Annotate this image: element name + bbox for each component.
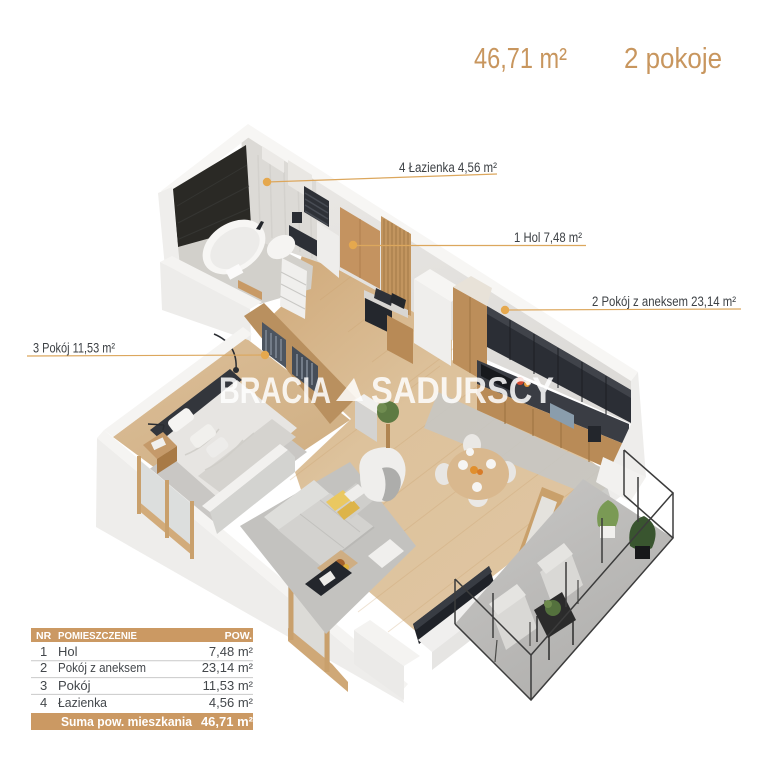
svg-text:2: 2 — [40, 660, 47, 675]
svg-text:2 Pokój z aneksem 23,14 m²: 2 Pokój z aneksem 23,14 m² — [592, 294, 736, 309]
svg-text:11,53 m²: 11,53 m² — [203, 678, 254, 693]
svg-text:2 pokoje: 2 pokoje — [624, 43, 722, 75]
svg-text:46,71 m²: 46,71 m² — [201, 714, 254, 729]
svg-text:Pokój: Pokój — [58, 678, 91, 693]
svg-text:1: 1 — [40, 644, 47, 659]
svg-text:POMIESZCZENIE: POMIESZCZENIE — [58, 630, 137, 642]
svg-text:46,71 m²: 46,71 m² — [474, 43, 567, 75]
svg-text:3: 3 — [40, 678, 47, 693]
svg-text:Hol: Hol — [58, 644, 78, 659]
svg-text:SADURSCY: SADURSCY — [371, 370, 554, 411]
svg-text:NR: NR — [36, 630, 52, 642]
svg-text:4 Łazienka 4,56 m²: 4 Łazienka 4,56 m² — [399, 160, 497, 175]
svg-text:23,14 m²: 23,14 m² — [202, 660, 254, 675]
svg-text:4: 4 — [40, 695, 47, 710]
svg-text:Łazienka: Łazienka — [58, 695, 108, 710]
svg-text:POW.: POW. — [225, 630, 253, 642]
svg-text:Pokój z aneksem: Pokój z aneksem — [58, 660, 146, 675]
svg-text:Suma pow. mieszkania: Suma pow. mieszkania — [61, 714, 193, 729]
svg-text:4,56 m²: 4,56 m² — [209, 695, 254, 710]
svg-text:7,48 m²: 7,48 m² — [209, 644, 254, 659]
svg-text:1 Hol 7,48 m²: 1 Hol 7,48 m² — [514, 230, 582, 245]
svg-text:3 Pokój 11,53 m²: 3 Pokój 11,53 m² — [33, 341, 115, 356]
svg-text:BRACIA: BRACIA — [219, 370, 331, 411]
